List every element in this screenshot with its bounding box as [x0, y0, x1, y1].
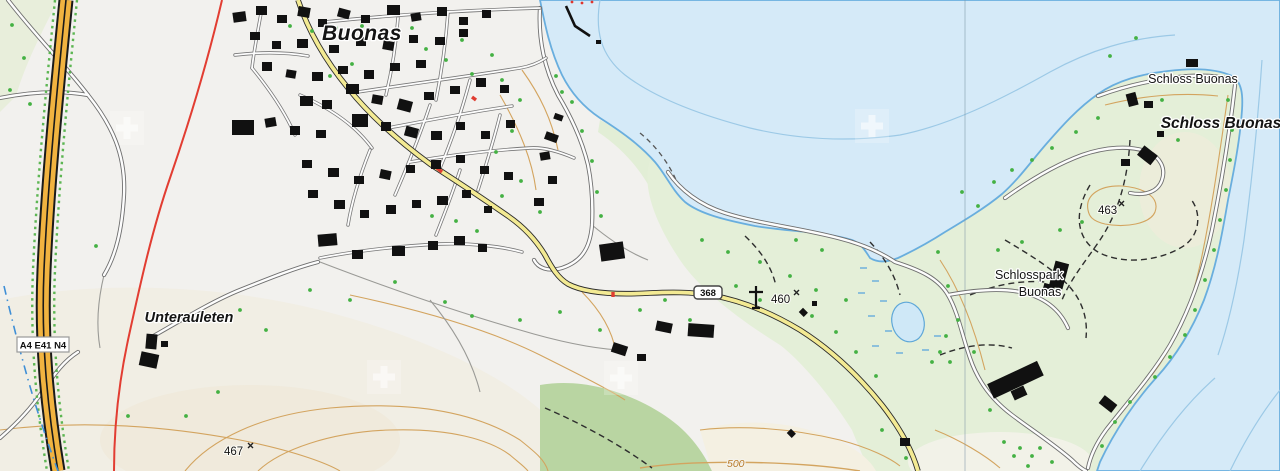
spot-height-460: 460	[771, 294, 790, 306]
label-unterauleten: Unterauleten	[145, 310, 234, 326]
label-schloss-buonas-area: Schloss Buonas	[1161, 115, 1280, 132]
route-badge-368: 368	[694, 286, 722, 299]
motorway-badge: A4 E41 N4	[17, 337, 69, 352]
route-badge-text: 368	[700, 288, 716, 299]
topo-map-canvas[interactable]: Buonas Schloss Buonas Schloss Buonas Sch…	[0, 0, 1280, 471]
spot-height-467: 467	[224, 446, 243, 458]
grid-cross-watermark	[604, 361, 638, 395]
label-buonas: Buonas	[322, 22, 402, 45]
grid-cross-watermark	[367, 360, 401, 394]
motorway-badge-text: A4 E41 N4	[20, 341, 67, 352]
label-schloss-buonas-point: Schloss Buonas	[1148, 72, 1238, 86]
label-schlosspark-line2: Buonas	[1019, 285, 1061, 299]
spot-height-463: 463	[1098, 205, 1117, 217]
contour-label-500: 500	[727, 458, 745, 470]
grid-cross-watermark	[855, 109, 889, 143]
topo-map-viewport[interactable]: Buonas Schloss Buonas Schloss Buonas Sch…	[0, 0, 1280, 471]
label-schlosspark-line1: Schlosspark	[995, 268, 1064, 282]
